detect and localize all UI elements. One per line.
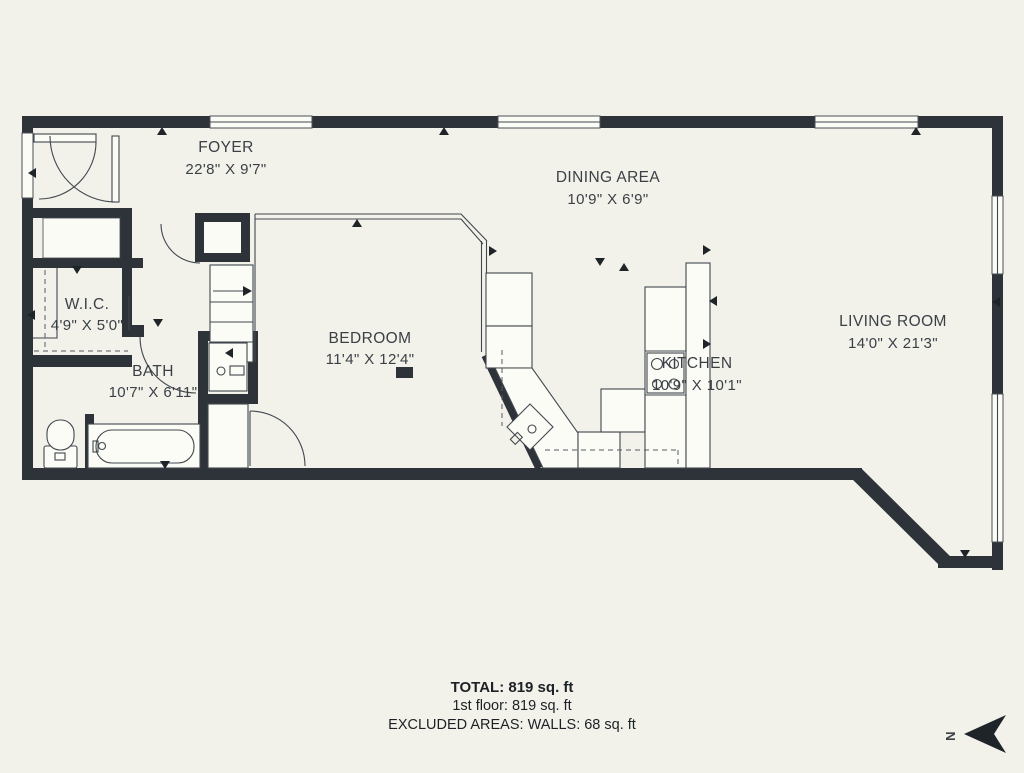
entry-doors bbox=[22, 133, 119, 202]
room-label-wic: W.I.C. bbox=[65, 296, 110, 313]
floor-plan: FOYER 22'8" X 9'7" DINING AREA 10'9" X 6… bbox=[0, 0, 1024, 768]
room-dims-bath: 10'7" X 6'11" bbox=[109, 384, 198, 401]
window-top-3 bbox=[815, 116, 918, 128]
entry-door-leaf bbox=[34, 134, 96, 142]
window-top-1 bbox=[210, 116, 312, 128]
room-label-living: LIVING ROOM bbox=[839, 313, 947, 330]
room-dims-bedroom: 11'4" X 12'4" bbox=[326, 351, 415, 368]
bedroom-marker-rect bbox=[396, 367, 413, 378]
entry-closet bbox=[43, 218, 120, 258]
window-right-1 bbox=[992, 196, 1003, 274]
room-label-bedroom: BEDROOM bbox=[329, 330, 412, 347]
area-summary: TOTAL: 819 sq. ft 1st floor: 819 sq. ft … bbox=[388, 678, 636, 735]
bedroom-closet bbox=[208, 404, 248, 468]
room-dims-dining: 10'9" X 6'9" bbox=[567, 191, 648, 208]
summary-total: TOTAL: 819 sq. ft bbox=[388, 678, 636, 697]
compass-north-label: N bbox=[943, 731, 958, 741]
room-label-bath: BATH bbox=[132, 363, 174, 380]
room-label-foyer: FOYER bbox=[198, 139, 253, 156]
counter-left-lower bbox=[486, 326, 532, 368]
entry-door2-leaf bbox=[112, 136, 119, 202]
summary-excluded: EXCLUDED AREAS: WALLS: 68 sq. ft bbox=[388, 716, 636, 735]
bathtub bbox=[88, 424, 200, 468]
room-dims-foyer: 22'8" X 9'7" bbox=[185, 161, 266, 178]
foyer-closet-door-arc bbox=[161, 224, 200, 263]
summary-floor: 1st floor: 819 sq. ft bbox=[388, 697, 636, 716]
bedroom-closet-door-arc bbox=[250, 411, 305, 466]
window-top-2 bbox=[498, 116, 600, 128]
foyer-closet bbox=[204, 222, 241, 253]
window-right-2 bbox=[992, 394, 1003, 542]
washer bbox=[209, 343, 247, 391]
room-label-dining: DINING AREA bbox=[556, 169, 661, 186]
room-label-kitchen: KITCHEN bbox=[662, 355, 733, 372]
entry-opening bbox=[22, 133, 33, 198]
floor-plan-svg: FOYER 22'8" X 9'7" DINING AREA 10'9" X 6… bbox=[0, 0, 1024, 768]
entry-door-arc bbox=[39, 142, 96, 199]
compass: N bbox=[943, 715, 1006, 753]
room-dims-wic: 4'9" X 5'0" bbox=[51, 317, 124, 334]
room-dims-kitchen: 10'9" X 10'1" bbox=[652, 377, 742, 394]
toilet bbox=[44, 420, 77, 468]
counter-left-upper bbox=[486, 273, 532, 326]
compass-arrow-icon bbox=[964, 715, 1006, 753]
entry-door2-arc bbox=[50, 136, 116, 202]
room-dims-living: 14'0" X 21'3" bbox=[848, 335, 938, 352]
counter-island bbox=[601, 389, 645, 432]
